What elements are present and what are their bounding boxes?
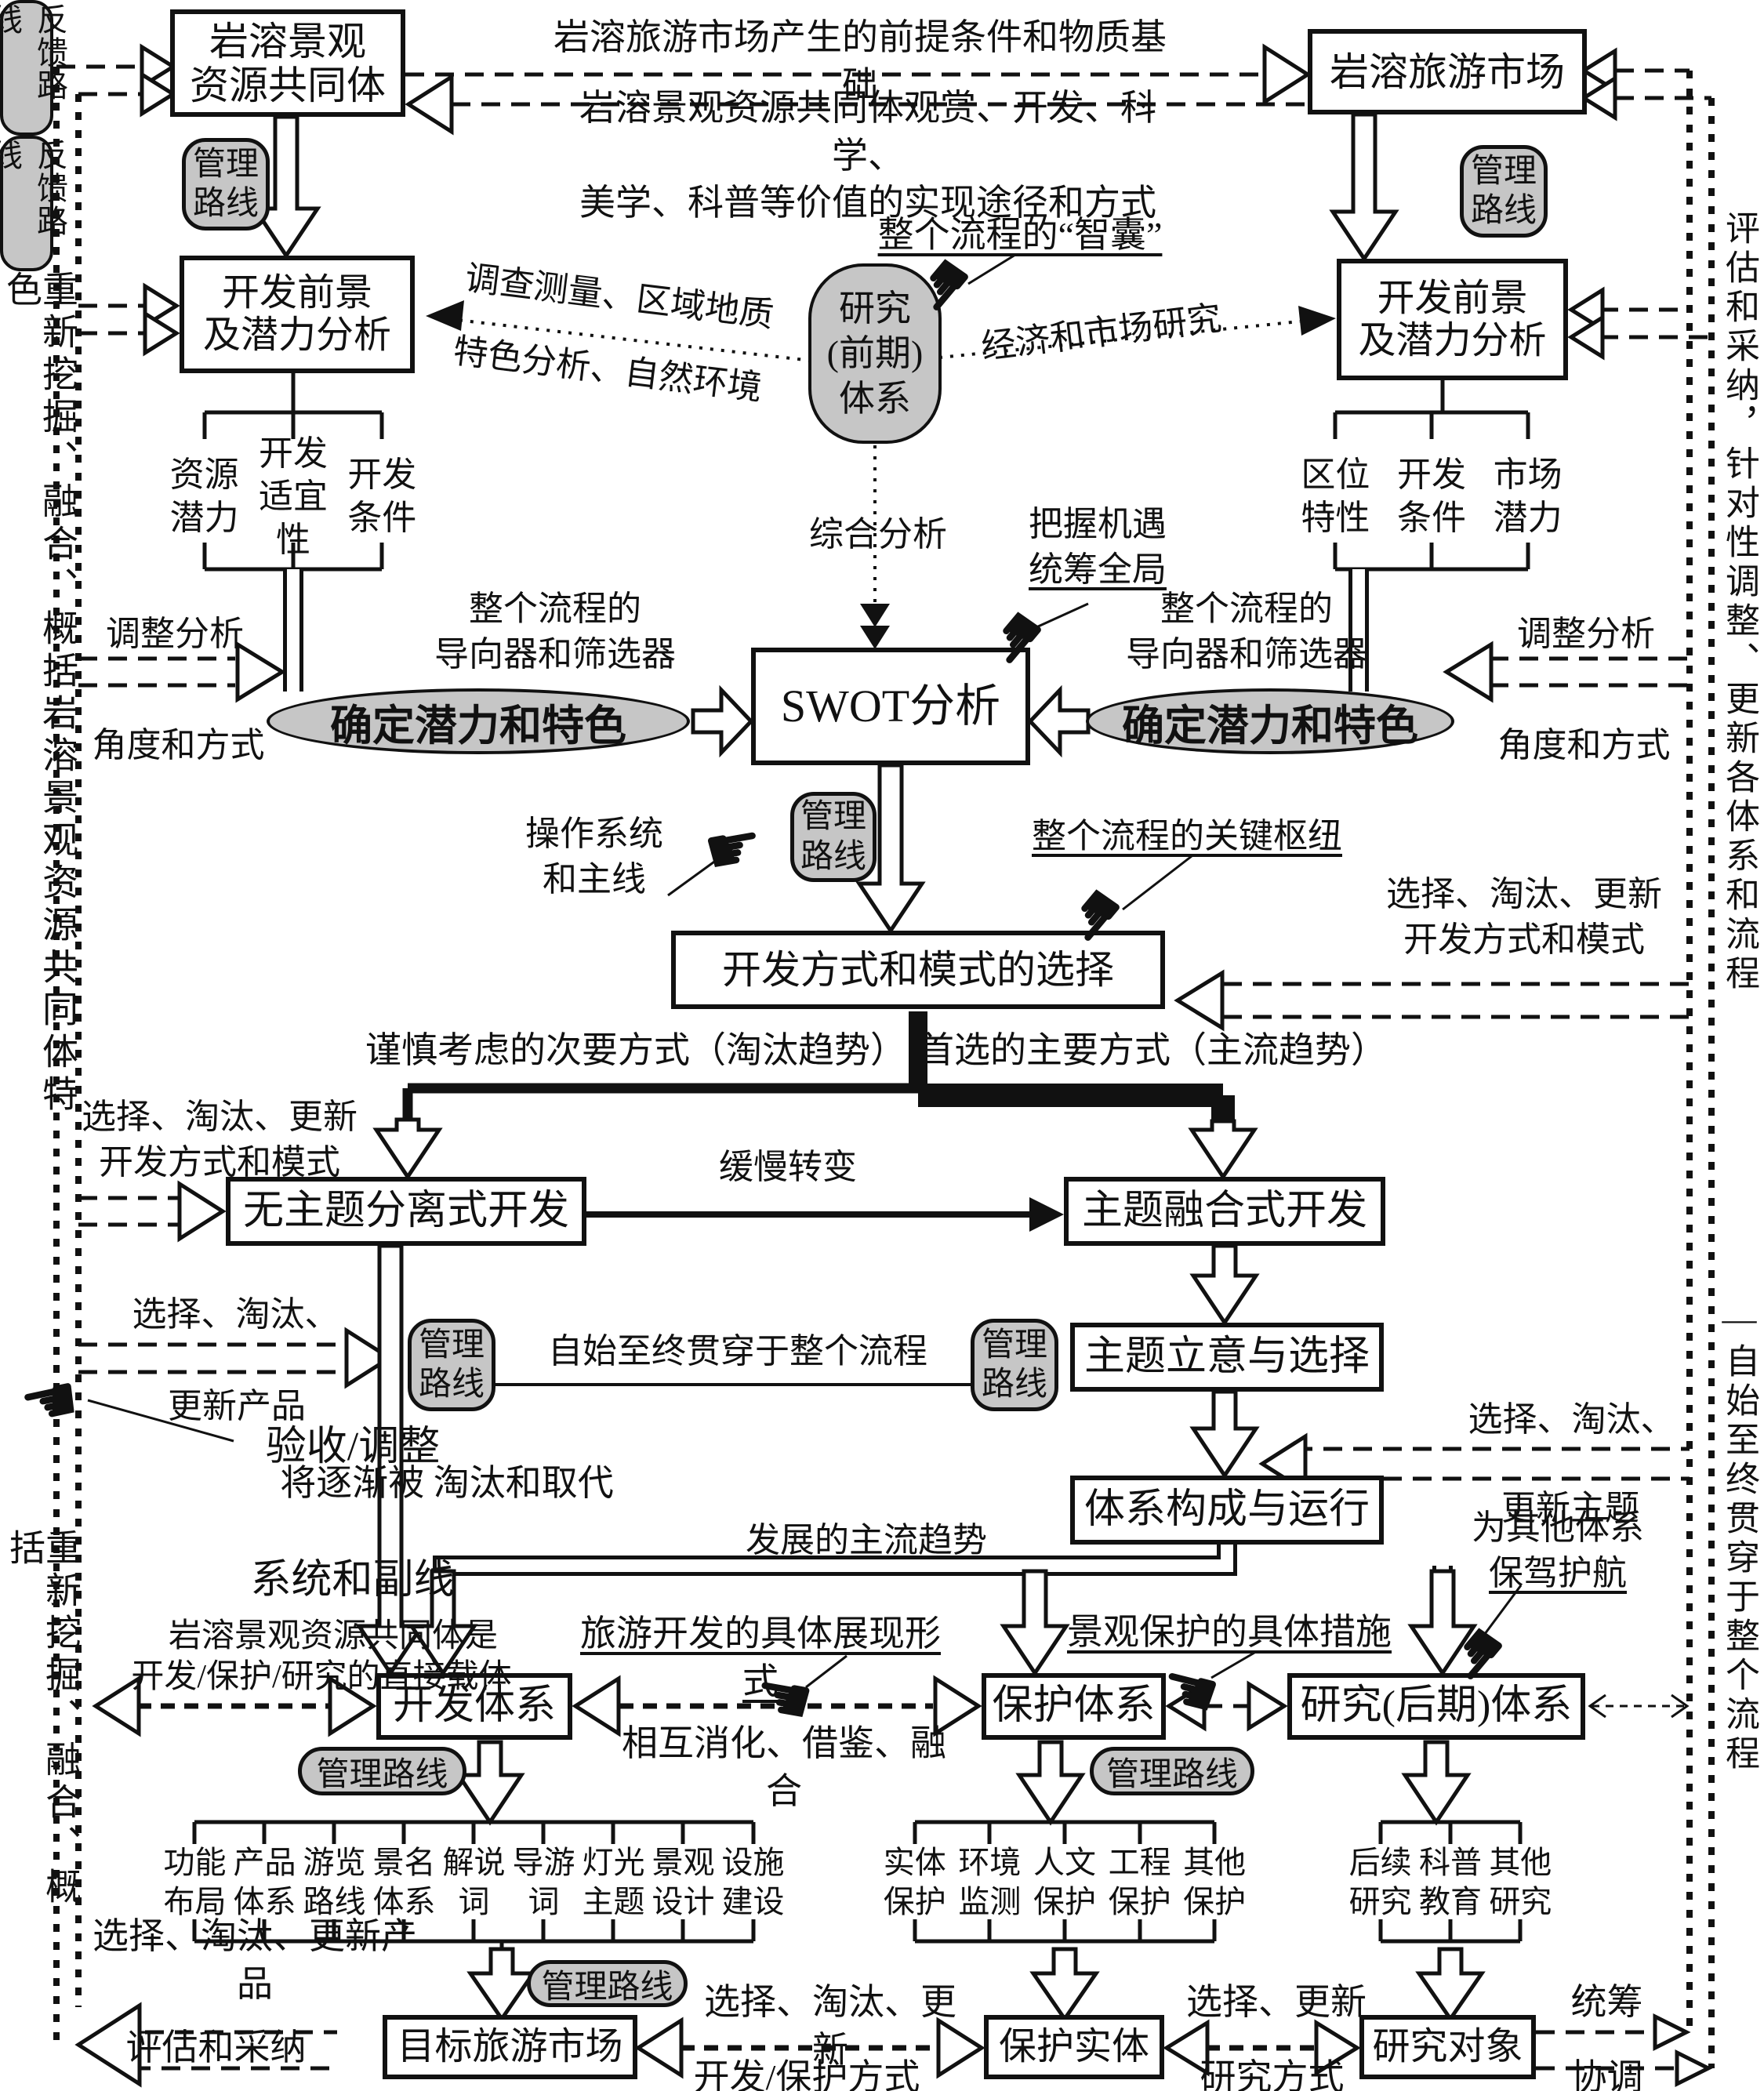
label-select-product-mid-1: 选择、淘汰、	[116, 1292, 355, 1338]
research-item: 其他 研究	[1486, 1839, 1555, 1926]
label-accept-2: 系统和副线	[221, 1554, 484, 1608]
label-select-theme-1: 选择、淘汰、	[1452, 1397, 1691, 1443]
label-mainstream: 发展的主流趋势	[745, 1518, 988, 1563]
arrow-research-right-feedback	[1590, 1695, 1687, 1717]
label-escort-1: 为其他体系	[1472, 1508, 1644, 1547]
node-swot: SWOT分析	[751, 648, 1030, 765]
side-text-left-bottom: 重新挖掘、融合、概括	[6, 1529, 78, 1937]
side-text-right-bottom: —自始至终贯穿于整个流程	[1722, 1300, 1756, 1880]
node-theme-select: 主题立意与选择	[1070, 1323, 1384, 1392]
protect-item: 环境 监测	[953, 1839, 1028, 1926]
criteria-cell: 区位 特性	[1287, 437, 1384, 555]
criteria-cell: 开发 条件	[1384, 437, 1480, 555]
research-item: 后续 研究	[1345, 1839, 1415, 1926]
arrow-select-mode-right	[1178, 973, 1690, 1028]
node-research-object: 研究对象	[1359, 2015, 1536, 2079]
arrow-rail-to-protect	[1004, 1571, 1066, 1673]
arrow-to-target-market	[470, 1949, 533, 2019]
arrow-to-protect-entity	[1033, 1949, 1096, 2019]
arrow-research-down	[1405, 1742, 1468, 1822]
arrow-potential-left	[693, 690, 751, 753]
criteria-cell: 资源 潜力	[160, 437, 249, 555]
label-hub: 整个流程的关键枢纽	[1030, 814, 1344, 859]
criteria-cell: 开发 适宜性	[249, 437, 337, 555]
label-grasp-2: 统筹全局	[1029, 550, 1167, 589]
pointing-hand-icon: ☚	[749, 1661, 818, 1736]
dev-item: 解说 词	[439, 1839, 509, 1926]
label-carrier-2: 开发/保护/研究的直接载体	[98, 1656, 545, 1699]
node-prospect-left: 开发前景 及潜力分析	[180, 256, 415, 373]
node-no-theme-dev: 无主题分离式开发	[226, 1177, 586, 1246]
label-angle-right: 角度和方式	[1484, 723, 1684, 768]
label-synthesis: 综合分析	[800, 512, 956, 557]
arrow-select-mode-left	[78, 1184, 223, 1239]
criteria-cell: 市场 潜力	[1479, 437, 1576, 555]
criteria-cell: 开发 条件	[338, 437, 426, 555]
arrow-potential-right	[1030, 690, 1088, 753]
dev-item: 设施 建设	[718, 1839, 788, 1926]
label-select-update-2: 选择、更新	[1182, 1979, 1370, 2027]
node-theme-fusion-dev: 主题融合式开发	[1064, 1177, 1385, 1246]
protect-item: 人文 保护	[1027, 1839, 1102, 1926]
arrow-fusion-to-theme	[1193, 1246, 1256, 1323]
protect-item: 实体 保护	[877, 1839, 953, 1926]
pill-management-1: 管理 路线	[182, 138, 270, 231]
label-preferred: 首选的主要方式（主流趋势）	[913, 1027, 1392, 1075]
research-item: 科普 教育	[1415, 1839, 1485, 1926]
research-items: 后续 研究 科普 教育 其他 研究	[1345, 1839, 1555, 1926]
label-overall-2: 协调	[1562, 2054, 1652, 2091]
pill-management-6: 管理路线	[298, 1747, 466, 1795]
label-adjust-right: 调整分析	[1496, 612, 1676, 657]
node-protect-entity: 保护实体	[984, 2015, 1164, 2079]
node-research-late: 研究(后期)体系	[1287, 1673, 1585, 1740]
label-evaluate: 评估和采纳	[108, 2024, 324, 2072]
pill-management-5: 管理 路线	[971, 1319, 1058, 1411]
label-select-product-bottom: 选择、淘汰、更新产品	[86, 1913, 423, 2008]
label-guide-right: 整个流程的 导向器和筛选器	[1117, 586, 1376, 677]
label-carrier-1: 岩溶景观资源共同体是	[145, 1615, 521, 1658]
criteria-right: 区位 特性 开发 条件 市场 潜力	[1287, 437, 1576, 555]
side-text-left-top: 重新挖掘、融合、概括岩溶景观资源共同体特色	[3, 270, 75, 1149]
label-grasp: 把握机遇统筹全局	[1011, 502, 1184, 593]
arrow-dev-down	[459, 1742, 521, 1822]
arrow-select-product-mid	[78, 1330, 390, 1385]
label-dev-protect-mode: 开发/保护方式	[689, 2054, 924, 2091]
label-through-all: 自始至终贯穿于整个流程	[514, 1329, 961, 1374]
label-escort: 为其他体系保驾护航	[1460, 1505, 1656, 1596]
dev-item: 灯光 主题	[579, 1839, 648, 1926]
label-cautious: 谨慎考虑的次要方式（淘汰趋势）	[365, 1027, 906, 1075]
label-overall-1: 统筹	[1562, 1979, 1652, 2027]
protect-item: 其他 保护	[1177, 1839, 1252, 1926]
label-research-mode: 研究方式	[1188, 2054, 1356, 2091]
protect-items: 实体 保护 环境 监测 人文 保护 工程 保护 其他 保护	[877, 1839, 1252, 1926]
label-angle-left: 角度和方式	[78, 723, 278, 768]
ellipse-potential-right: 确定潜力和特色	[1086, 688, 1454, 754]
dev-item: 导游 词	[509, 1839, 579, 1926]
node-target-market: 目标旅游市场	[383, 2015, 637, 2079]
node-protect-system: 保护体系	[982, 1673, 1166, 1740]
label-value-path: 岩溶景观资源共同体观赏、开发、科学、 美学、科普等价值的实现途径和方式	[558, 85, 1178, 227]
pill-management-4: 管理 路线	[408, 1319, 495, 1411]
arrow-into-no-theme	[376, 1120, 439, 1177]
node-karst-resource: 岩溶景观 资源共同体	[170, 9, 405, 117]
label-escort-2: 保驾护航	[1489, 1554, 1627, 1592]
node-system-run: 体系构成与运行	[1070, 1476, 1384, 1545]
label-operate: 操作系统 和主线	[500, 811, 688, 902]
pointing-hand-icon: ☛	[699, 811, 768, 886]
label-brain: 整个流程的“智囊”	[851, 212, 1189, 260]
arrow-into-fusion	[1192, 1121, 1254, 1177]
ellipse-potential-left: 确定潜力和特色	[267, 688, 690, 754]
pill-management-3: 管理 路线	[790, 792, 877, 882]
dev-item: 景观 设计	[648, 1839, 718, 1926]
label-slow-change: 缓慢转变	[710, 1145, 866, 1190]
label-select-mode-right: 选择、淘汰、更新 开发方式和模式	[1383, 872, 1665, 963]
label-guide-left: 整个流程的 导向器和筛选器	[426, 586, 684, 677]
label-protect-measure: 景观保护的具体措施	[1065, 1609, 1394, 1657]
flowchart-canvas: 岩溶景观 资源共同体 岩溶旅游市场 开发前景 及潜力分析 开发前景 及潜力分析 …	[0, 0, 1764, 2091]
feedback-line-right	[1690, 71, 1711, 2068]
arrow-protect-down	[1019, 1742, 1082, 1822]
pill-management-7: 管理路线	[1090, 1747, 1254, 1795]
pill-management-8: 管理路线	[527, 1960, 688, 2007]
arrow-to-research-object	[1419, 1949, 1482, 2019]
side-text-right-top: 评估和采纳，针对性调整、更新各体系和流程	[1722, 210, 1756, 1057]
label-select-mode-left: 选择、淘汰、更新 开发方式和模式	[74, 1095, 365, 1185]
arrow-theme-to-system	[1193, 1392, 1256, 1476]
label-accept-1: 验收/调整	[235, 1421, 470, 1475]
label-grasp-1: 把握机遇	[1029, 505, 1167, 543]
pill-management-2: 管理 路线	[1460, 145, 1548, 238]
node-karst-market: 岩溶旅游市场	[1308, 29, 1587, 114]
criteria-left: 资源 潜力 开发 适宜性 开发 条件	[160, 437, 426, 555]
label-adjust-left: 调整分析	[85, 612, 265, 657]
node-prospect-right: 开发前景 及潜力分析	[1337, 259, 1568, 380]
protect-item: 工程 保护	[1102, 1839, 1178, 1926]
arrow-market-to-prospect	[1333, 114, 1396, 259]
